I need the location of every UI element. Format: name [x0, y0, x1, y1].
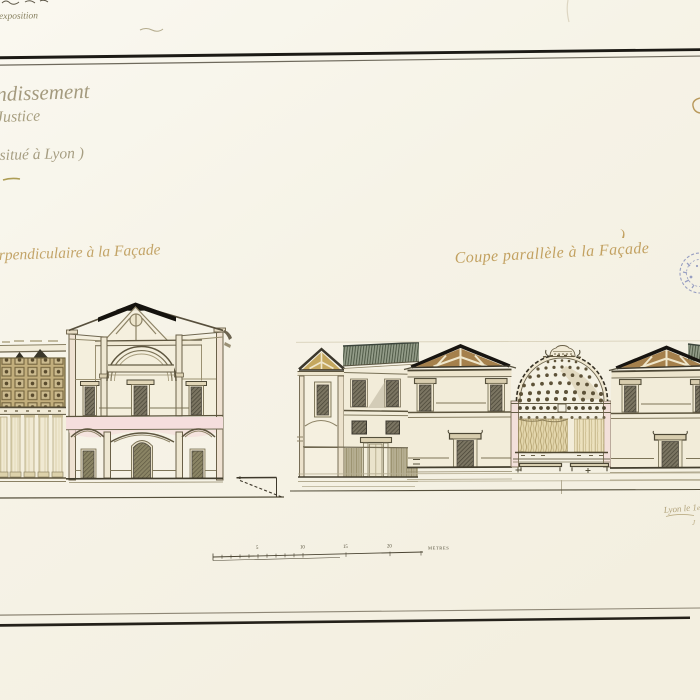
svg-text:​, situé à Lyon ): ​, situé à Lyon )	[0, 145, 84, 164]
svg-text:​l exposition: ​l exposition	[0, 11, 38, 22]
svg-text:10: 10	[300, 546, 305, 551]
svg-text:20: 20	[387, 544, 392, 549]
svg-text:METRES: METRES	[428, 546, 449, 551]
svg-text:​ Justice: ​ Justice	[0, 108, 41, 127]
svg-text:15: 15	[343, 545, 348, 550]
svg-text:ondissement: ondissement	[0, 79, 91, 107]
